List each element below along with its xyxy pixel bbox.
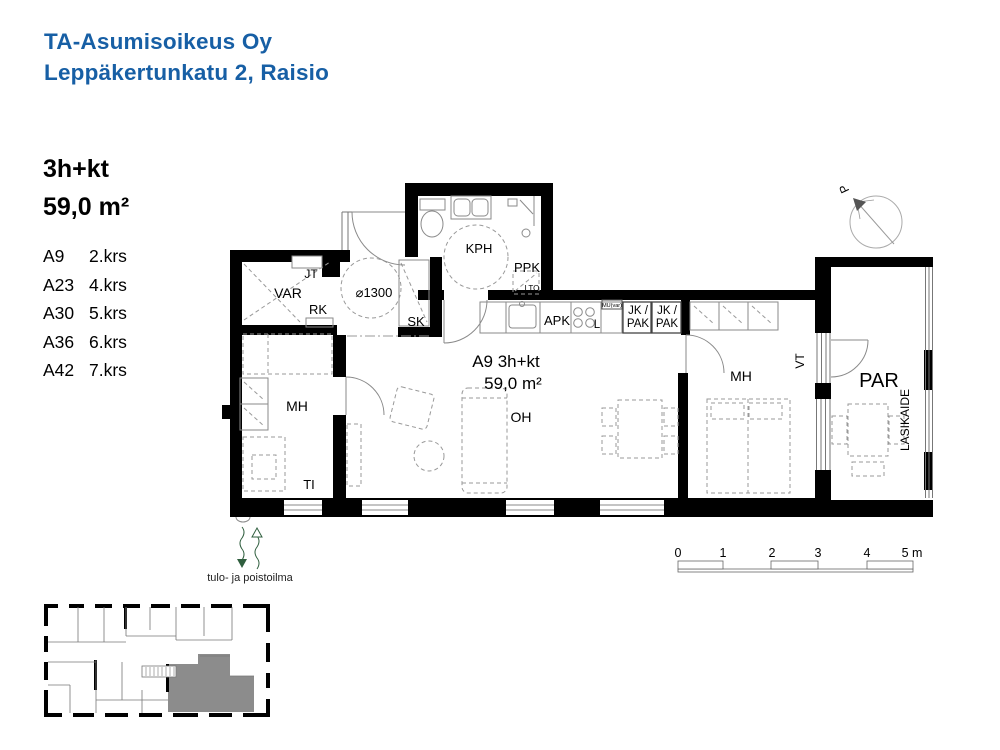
room-label-lto: LTO	[525, 284, 540, 293]
ventilation-label: tulo- ja poistoilma	[207, 572, 293, 584]
stairwell-icon	[142, 666, 176, 677]
glass-railing-label: LASIKAIDE	[898, 389, 912, 451]
room-label-sk: SK	[407, 314, 425, 329]
scale-tick-3: 3	[815, 546, 822, 560]
room-label-oh: OH	[511, 409, 532, 425]
room-label-fridge-2b: PAK	[656, 318, 678, 330]
floorplan-drawing: JT VAR RK ⌀1300 SK KPH PPK LTO APK L MU(…	[0, 0, 1000, 750]
scale-tick-5: 5 m	[902, 546, 923, 560]
scale-tick-0: 0	[675, 546, 682, 560]
north-arrow-icon	[853, 198, 866, 211]
unit-title-label: A9 3h+kt	[472, 352, 540, 371]
room-label-ppk: PPK	[514, 260, 540, 275]
room-label-jt: JT	[304, 267, 318, 281]
room-label-var: VAR	[274, 285, 302, 301]
room-label-mh-left: MH	[286, 398, 308, 414]
unit-area-label: 59,0 m²	[484, 374, 542, 393]
room-label-apk: APK	[544, 313, 570, 328]
scale-tick-2: 2	[769, 546, 776, 560]
room-label-vt: VT	[793, 353, 807, 369]
room-label-fridge-1a: JK /	[628, 305, 649, 317]
room-label-fridge-1b: PAK	[627, 318, 649, 330]
building-overview	[43, 603, 271, 718]
supply-air-icon	[240, 527, 244, 560]
north-label: P	[836, 182, 852, 195]
room-label-par: PAR	[859, 370, 899, 392]
room-label-rk: RK	[309, 302, 327, 317]
room-label-kph: KPH	[466, 241, 493, 256]
room-label-stove: L	[594, 319, 601, 331]
room-label-fridge-2a: JK /	[657, 305, 678, 317]
north-compass: P	[836, 182, 902, 248]
ventilation-symbol: tulo- ja poistoilma	[207, 527, 293, 584]
scale-tick-4: 4	[864, 546, 871, 560]
highlighted-unit	[168, 654, 254, 712]
floorplan-page: TA-Asumisoikeus Oy Leppäkertunkatu 2, Ra…	[0, 0, 1000, 750]
exhaust-air-icon	[255, 536, 259, 569]
room-label-microwave: MU(var)	[602, 303, 622, 309]
glass-sections	[342, 212, 933, 498]
scale-bar: 0 1 2 3 4 5 m	[675, 546, 923, 572]
room-label-ti: TI	[303, 477, 315, 492]
turning-circle-dimension: ⌀1300	[356, 285, 393, 300]
room-label-mh-right: MH	[730, 368, 752, 384]
scale-tick-1: 1	[720, 546, 727, 560]
